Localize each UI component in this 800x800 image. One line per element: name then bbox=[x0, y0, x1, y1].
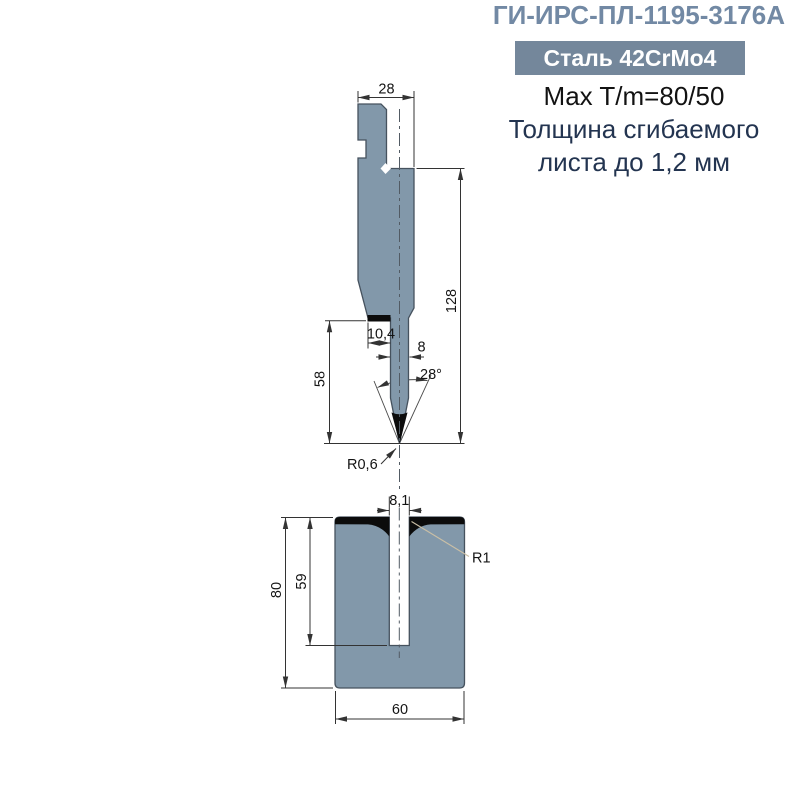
punch-tip-radius-dim: R0,6 bbox=[347, 457, 378, 473]
die-slot-depth-dim: 59 bbox=[294, 573, 310, 589]
page: ГИ-ИРС-ПЛ-1195-3176А Сталь 42CrMo4 Max T… bbox=[0, 0, 800, 800]
punch-shape bbox=[358, 104, 414, 444]
punch-total-height-dim: 128 bbox=[444, 289, 460, 313]
die-height-dim: 80 bbox=[269, 582, 285, 598]
dim-58-lines bbox=[325, 321, 366, 444]
dim-80-lines bbox=[281, 518, 333, 689]
punch-blade-width-dim: 8 bbox=[417, 340, 425, 356]
punch-hardened-band bbox=[368, 315, 391, 322]
technical-drawing: 28 128 58 10,4 8 28° R0,6 bbox=[0, 0, 800, 800]
punch-working-height-dim: 58 bbox=[313, 371, 329, 387]
die-slot-width-dim: 8,1 bbox=[389, 493, 409, 509]
punch-shoulder-width-dim: 10,4 bbox=[367, 327, 395, 343]
die-width-dim: 60 bbox=[392, 702, 408, 718]
punch-tip-angle-dim: 28° bbox=[420, 367, 442, 383]
punch-top-width-dim: 28 bbox=[378, 82, 394, 98]
tip-radius-leader bbox=[381, 449, 396, 465]
die-slot-radius-dim: R1 bbox=[472, 551, 491, 567]
